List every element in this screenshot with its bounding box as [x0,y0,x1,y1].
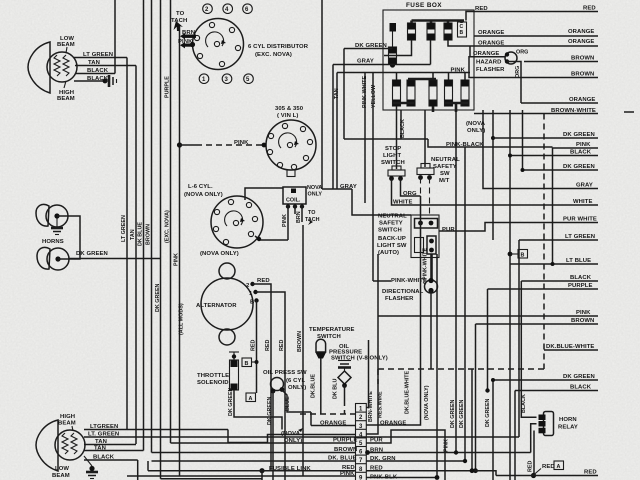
svg-text:SWITCH: SWITCH [381,160,405,166]
svg-text:NEUTRAL: NEUTRAL [378,214,407,220]
svg-text:YELLOW: YELLOW [371,84,377,108]
svg-text:NOVA: NOVA [307,185,322,191]
svg-text:DK.BLUE-WHITE: DK.BLUE-WHITE [405,370,411,414]
svg-text:NEUTRAL: NEUTRAL [431,157,460,163]
svg-text:A: A [249,396,253,402]
svg-text:B: B [460,30,464,36]
svg-text:BROWN-WHITE: BROWN-WHITE [551,108,596,114]
svg-text:DK GREEN: DK GREEN [155,283,161,312]
svg-text:LT GREEN: LT GREEN [121,215,127,242]
svg-text:BLACK: BLACK [400,119,406,138]
svg-text:TO: TO [176,11,185,17]
svg-text:RELAY: RELAY [558,425,578,431]
svg-text:BROWN: BROWN [571,318,594,324]
svg-text:(EXC. NOVA): (EXC. NOVA) [165,210,171,243]
svg-text:BROWN: BROWN [146,224,152,245]
svg-text:DK BLU: DK BLU [333,379,339,399]
svg-text:ORANGE: ORANGE [568,29,594,35]
svg-text:SAFETY: SAFETY [433,164,457,170]
svg-text:FUSE BOX: FUSE BOX [406,2,442,9]
svg-text:LT GREEN: LT GREEN [565,234,595,240]
svg-text:LT BLUE: LT BLUE [566,258,591,264]
svg-text:DK GREEN: DK GREEN [563,374,595,380]
svg-text:L-6 CYL.: L-6 CYL. [188,184,213,190]
svg-text:GRAY: GRAY [576,183,593,189]
svg-text:BLACK: BLACK [570,150,592,156]
svg-text:ORANGE: ORANGE [478,30,504,36]
svg-text:ORG: ORG [403,191,417,197]
svg-text:ORG: ORG [515,66,521,78]
svg-text:TAN: TAN [130,229,136,240]
svg-text:LOW: LOW [55,466,69,472]
svg-text:BROWN: BROWN [297,331,303,352]
svg-text:B: B [521,253,525,259]
svg-text:HIGH: HIGH [60,414,75,420]
svg-text:PINK: PINK [174,253,180,266]
svg-text:COIL.: COIL. [286,198,301,204]
svg-text:BLUE: BLUE [285,396,291,411]
svg-text:BEAM: BEAM [58,421,76,427]
svg-text:SW: SW [440,171,450,177]
svg-text:ORG: ORG [516,50,528,56]
svg-text:TEMPERATURE: TEMPERATURE [309,327,355,333]
svg-text:M/T: M/T [439,178,450,184]
svg-text:OIL PRESS SW: OIL PRESS SW [263,370,307,376]
svg-text:ORANGE: ORANGE [478,41,504,47]
svg-text:PINK-WHITE: PINK-WHITE [391,278,427,284]
svg-text:DK GREEN: DK GREEN [450,399,456,428]
svg-text:BRN: BRN [296,211,302,223]
svg-text:(NOVA ONLY): (NOVA ONLY) [200,251,239,257]
svg-text:PUR: PUR [442,227,455,233]
svg-text:ORANGE: ORANGE [380,421,406,427]
svg-text:LIGHT: LIGHT [383,153,401,159]
svg-text:STOP: STOP [385,146,401,152]
svg-text:RED: RED [265,340,271,351]
svg-text:RED: RED [584,470,597,476]
svg-text:(AUTO): (AUTO) [378,250,399,256]
svg-text:PINK: PINK [576,310,591,316]
svg-text:BACK-UP: BACK-UP [378,236,406,242]
svg-text:(EXC. NOVA): (EXC. NOVA) [255,52,292,58]
svg-text:WHITE: WHITE [393,200,412,206]
svg-text:DIRECTIONAL: DIRECTIONAL [382,289,424,295]
svg-text:DK GREEN: DK GREEN [459,399,465,428]
svg-text:(NOVA ONLY): (NOVA ONLY) [424,385,430,420]
svg-text:DK GREEN: DK GREEN [76,251,108,257]
svg-text:BEAM: BEAM [57,42,75,48]
svg-text:WHITE: WHITE [573,199,592,205]
svg-text:BROWN: BROWN [571,56,594,62]
svg-text:RED: RED [583,6,596,12]
svg-text:PURPLE: PURPLE [165,76,171,98]
svg-text:ORANGE: ORANGE [569,97,595,103]
svg-text:RED: RED [475,6,488,12]
svg-text:SWITCH: SWITCH [378,228,402,234]
svg-text:FLASHER: FLASHER [476,67,505,73]
svg-text:GRAY: GRAY [357,59,374,65]
svg-text:DK BLUE: DK BLUE [138,222,144,246]
svg-text:ORANGE: ORANGE [473,51,499,57]
svg-text:PINK: PINK [234,140,249,146]
svg-text:6 CYL DISTRIBUTOR: 6 CYL DISTRIBUTOR [248,44,309,50]
svg-text:ORANGE: ORANGE [568,39,594,45]
svg-text:305 & 350: 305 & 350 [275,106,304,112]
svg-text:DK GREEN: DK GREEN [485,398,491,427]
svg-text:A: A [557,464,561,470]
svg-text:DK GREEN: DK GREEN [267,396,273,425]
svg-text:HAZARD: HAZARD [476,60,501,66]
svg-text:RED: RED [279,340,285,351]
svg-text:(6 CYL: (6 CYL [286,378,306,384]
svg-text:B: B [250,300,254,306]
svg-text:DK GREEN: DK GREEN [228,387,234,416]
svg-text:RED: RED [257,278,270,284]
svg-text:BLACK: BLACK [570,385,592,391]
svg-text:RED: RED [251,340,257,351]
svg-text:DK.BLUE: DK.BLUE [311,374,317,398]
svg-text:DK.BLUE-WHITE: DK.BLUE-WHITE [546,344,594,350]
svg-text:ONLY: ONLY [308,192,323,198]
svg-text:SWITCH (V-8 ONLY): SWITCH (V-8 ONLY) [331,356,388,362]
svg-text:PINK: PINK [282,214,288,227]
svg-text:PINK-WHITE: PINK-WHITE [423,248,429,280]
svg-text:DK GREEN: DK GREEN [563,132,595,138]
svg-text:PURPLE: PURPLE [568,283,593,289]
svg-text:(NOVA ONLY): (NOVA ONLY) [184,192,223,198]
svg-text:BLACK: BLACK [521,394,527,413]
svg-text:DK GREEN: DK GREEN [563,164,595,170]
svg-text:PINK: PINK [576,142,591,148]
svg-text:B: B [245,361,249,367]
svg-text:FLASHER: FLASHER [385,296,414,302]
svg-text:HORNS: HORNS [42,239,64,245]
svg-text:ALTERNATOR: ALTERNATOR [196,303,237,309]
svg-text:( VIN L): ( VIN L) [277,113,298,119]
svg-text:RED: RED [542,464,555,470]
svg-text:ONLY): ONLY) [288,385,306,391]
svg-text:SAFETY: SAFETY [379,221,403,227]
svg-text:THROTTLE: THROTTLE [197,373,229,379]
svg-text:TACH: TACH [305,217,320,223]
svg-text:BEAM: BEAM [52,473,70,479]
svg-text:PUR WHITE: PUR WHITE [563,217,597,223]
svg-text:RED: RED [528,461,534,472]
svg-text:SOLENOID: SOLENOID [197,380,229,386]
svg-text:TO: TO [308,210,315,216]
svg-text:LIGHT SW: LIGHT SW [377,243,407,249]
svg-text:TACH: TACH [171,18,187,24]
svg-text:(ALL MODS): (ALL MODS) [179,303,185,335]
svg-text:TAN: TAN [334,88,340,99]
svg-text:BLACK: BLACK [570,275,592,281]
svg-text:HORN: HORN [559,417,577,423]
svg-text:BEAM: BEAM [57,96,75,102]
svg-text:BROWN: BROWN [571,72,594,78]
